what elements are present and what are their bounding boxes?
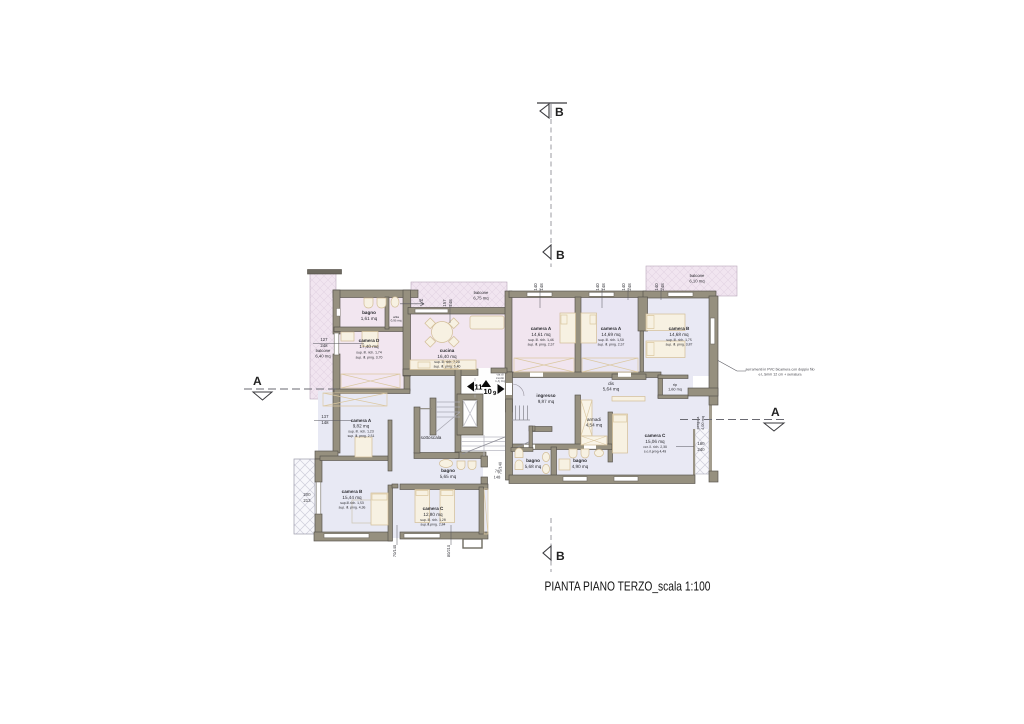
svg-text:16,40 mq: 16,40 mq <box>437 354 457 359</box>
svg-text:bagno: bagno <box>526 458 540 463</box>
svg-text:5,64 mq: 5,64 mq <box>603 387 620 392</box>
svg-text:15,44 mq: 15,44 mq <box>342 495 362 500</box>
svg-text:sup. ill. prog. 2,51: sup. ill. prog. 2,51 <box>348 434 375 438</box>
svg-text:camera B: camera B <box>669 326 690 331</box>
svg-text:camera C: camera C <box>645 433 666 438</box>
svg-text:9,82 mq: 9,82 mq <box>353 424 370 429</box>
svg-text:sup. ill. rich. 1,50: sup. ill. rich. 1,50 <box>598 338 624 342</box>
svg-text:sup. ill. rich. 1,46: sup. ill. rich. 1,46 <box>528 338 554 342</box>
svg-text:sup. ill. rich. 7,20: sup. ill. rich. 7,20 <box>434 360 460 364</box>
svg-text:A: A <box>253 374 262 388</box>
svg-text:e L 5mm 12 cm + serratura: e L 5mm 12 cm + serratura <box>758 373 801 377</box>
svg-text:127: 127 <box>320 337 328 342</box>
svg-text:80/210: 80/210 <box>446 544 451 557</box>
svg-text:sup.ill.prog. 2,84: sup.ill.prog. 2,84 <box>421 523 446 527</box>
svg-text:balcone: balcone <box>474 290 489 295</box>
svg-text:70/140: 70/140 <box>392 544 397 557</box>
svg-text:148: 148 <box>494 475 501 480</box>
svg-text:serramenti in PVC bicamera con: serramenti in PVC bicamera con doppio fi… <box>745 368 814 372</box>
svg-text:4,90 mq: 4,90 mq <box>572 464 589 469</box>
svg-text:A: A <box>771 405 780 419</box>
svg-text:sup. ill. prog. 2,57: sup. ill. prog. 2,57 <box>598 343 625 347</box>
svg-text:1,60 mq: 1,60 mq <box>668 388 682 392</box>
svg-text:14,61 mq: 14,61 mq <box>531 332 551 337</box>
svg-text:dis: dis <box>608 381 615 386</box>
svg-text:sup. ill. prog. 3,70: sup. ill. prog. 3,70 <box>356 356 383 360</box>
svg-text:bagno: bagno <box>362 310 376 315</box>
svg-text:140: 140 <box>533 283 538 291</box>
svg-text:240: 240 <box>697 447 705 452</box>
svg-text:14,68 mq: 14,68 mq <box>669 332 689 337</box>
svg-text:137: 137 <box>321 414 329 419</box>
svg-text:200: 200 <box>303 492 311 497</box>
svg-text:157: 157 <box>442 299 447 307</box>
svg-text:1,61 mq: 1,61 mq <box>361 316 378 321</box>
svg-text:14,69 mq: 14,69 mq <box>601 332 621 337</box>
svg-text:12,80 mq: 12,80 mq <box>423 512 443 517</box>
svg-text:15,06 mq: 15,06 mq <box>645 439 665 444</box>
svg-text:B: B <box>556 248 565 262</box>
svg-text:bagno: bagno <box>441 468 455 473</box>
svg-text:pergola: pergola <box>696 416 700 430</box>
svg-text:4,54 mq: 4,54 mq <box>586 423 603 428</box>
svg-text:6,40 mq: 6,40 mq <box>315 354 331 359</box>
svg-text:camera A: camera A <box>351 418 372 423</box>
svg-text:6,75 mq: 6,75 mq <box>473 296 489 301</box>
svg-text:sup. ill. rich. 1,23: sup. ill. rich. 1,23 <box>348 430 374 434</box>
svg-text:9,87 mq: 9,87 mq <box>538 399 555 404</box>
svg-text:sup. ill. rich. 1,28: sup. ill. rich. 1,28 <box>420 518 446 522</box>
svg-text:bagno: bagno <box>573 458 587 463</box>
svg-text:140: 140 <box>654 283 659 291</box>
svg-text:PIANTA PIANO TERZO_scala 1:100: PIANTA PIANO TERZO_scala 1:100 <box>545 579 711 594</box>
svg-text:cucina: cucina <box>440 348 455 353</box>
svg-text:17,40 mq: 17,40 mq <box>359 344 379 349</box>
svg-text:B: B <box>556 549 565 563</box>
svg-text:camera B: camera B <box>342 489 363 494</box>
svg-text:sup. ill. prog. 5,40: sup. ill. prog. 5,40 <box>434 365 461 369</box>
svg-text:sup. ill. prog. 2,57: sup. ill. prog. 2,57 <box>528 343 555 347</box>
svg-text:140: 140 <box>595 283 600 291</box>
svg-text:s.e.il.prog 4,49: s.e.il.prog 4,49 <box>644 450 666 454</box>
svg-text:B: B <box>555 105 564 119</box>
svg-text:balcone: balcone <box>316 348 331 353</box>
svg-text:armadi: armadi <box>587 417 601 422</box>
svg-text:rip: rip <box>673 383 677 387</box>
svg-text:sup. ill. prog. 4,36: sup. ill. prog. 4,36 <box>339 506 366 510</box>
svg-text:camera C: camera C <box>423 506 444 511</box>
svg-text:1,4j mq: 1,4j mq <box>495 379 505 383</box>
svg-text:5,65 mq: 5,65 mq <box>440 474 457 479</box>
svg-text:sup. ill. rich. 1,75: sup. ill. rich. 1,75 <box>666 338 692 342</box>
svg-text:10: 10 <box>484 387 492 396</box>
svg-text:camera A: camera A <box>601 326 622 331</box>
svg-text:140: 140 <box>621 283 626 291</box>
svg-text:70: 70 <box>495 469 500 474</box>
svg-text:sup. ill. rich. 1,74: sup. ill. rich. 1,74 <box>356 351 382 355</box>
svg-text:sup. ill. prog. 3,87: sup. ill. prog. 3,87 <box>666 343 693 347</box>
svg-text:248: 248 <box>448 299 453 307</box>
svg-text:ingresso: ingresso <box>536 393 555 398</box>
svg-text:4,00 mq: 4,00 mq <box>701 416 705 430</box>
svg-text:balcone: balcone <box>690 273 705 278</box>
svg-text:5,68 mq: 5,68 mq <box>525 464 542 469</box>
svg-text:0,95 mq: 0,95 mq <box>391 319 402 323</box>
svg-text:sup.ill.rich. 1,53: sup.ill.rich. 1,53 <box>340 501 364 505</box>
svg-text:camera D: camera D <box>359 338 380 343</box>
svg-text:180: 180 <box>697 441 705 446</box>
svg-text:sottoscala: sottoscala <box>421 435 442 440</box>
svg-text:213: 213 <box>303 498 311 503</box>
svg-text:6,10 mq: 6,10 mq <box>689 279 705 284</box>
svg-text:camera A: camera A <box>531 326 552 331</box>
svg-text:ver. il. rich. 2,30: ver. il. rich. 2,30 <box>643 445 667 449</box>
